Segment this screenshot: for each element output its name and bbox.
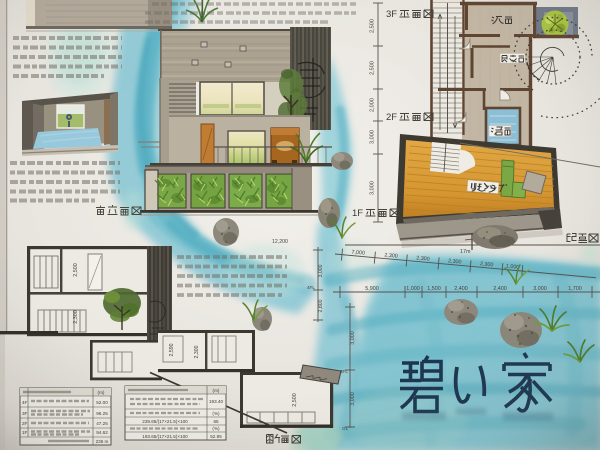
svg-text:(m): (m) — [98, 390, 105, 395]
svg-text:(%): (%) — [212, 411, 220, 416]
svg-text:(%): (%) — [212, 426, 220, 431]
svg-text:1F: 1F — [22, 430, 28, 435]
svg-text:96.25: 96.25 — [96, 411, 108, 416]
svg-text:12,200: 12,200 — [272, 239, 288, 245]
svg-text:17m: 17m — [460, 249, 471, 255]
svg-text:94.62: 94.62 — [96, 430, 108, 435]
svg-text:2,800: 2,800 — [318, 299, 324, 312]
svg-text:236 m: 236 m — [96, 439, 109, 444]
svg-text:193.40: 193.40 — [209, 399, 223, 404]
svg-text:1,000: 1,000 — [406, 286, 420, 292]
svg-text:52.00: 52.00 — [96, 400, 108, 405]
svg-text:2,500: 2,500 — [292, 393, 298, 407]
svg-text:1,700: 1,700 — [568, 286, 582, 292]
svg-text:2,590: 2,590 — [169, 343, 175, 356]
svg-text:52.95: 52.95 — [210, 434, 222, 439]
svg-text:2,300: 2,300 — [480, 261, 494, 268]
svg-text:3,000: 3,000 — [533, 286, 547, 292]
svg-text:2,300: 2,300 — [448, 258, 462, 265]
svg-text:(m): (m) — [213, 388, 220, 393]
svg-text:3F: 3F — [22, 411, 28, 416]
svg-text:2,500: 2,500 — [370, 61, 376, 75]
svg-text:2,300: 2,300 — [194, 345, 200, 358]
svg-text:3FL: 3FL — [340, 369, 348, 374]
svg-text:7,000: 7,000 — [351, 249, 365, 256]
svg-text:2,300: 2,300 — [384, 252, 398, 259]
svg-text:2,500: 2,500 — [73, 263, 79, 277]
svg-text:2,500: 2,500 — [370, 19, 376, 33]
svg-text:193.65/(17×21.5)×100: 193.65/(17×21.5)×100 — [142, 434, 188, 439]
svg-text:65: 65 — [213, 419, 219, 424]
svg-text:3,000: 3,000 — [370, 130, 376, 144]
svg-text:3,000: 3,000 — [350, 392, 356, 406]
svg-text:3,000: 3,000 — [370, 181, 376, 195]
svg-text:1,500: 1,500 — [427, 286, 441, 292]
svg-text:2F: 2F — [386, 112, 397, 123]
svg-text:3,000: 3,000 — [350, 331, 356, 345]
svg-text:2,300: 2,300 — [416, 255, 430, 262]
svg-text:2F: 2F — [22, 421, 28, 426]
svg-text:4F: 4F — [22, 400, 28, 405]
svg-text:4FL: 4FL — [307, 285, 315, 290]
svg-text:GL: GL — [342, 426, 349, 431]
svg-text:2,400: 2,400 — [493, 286, 507, 292]
svg-text:2,000: 2,000 — [370, 98, 376, 112]
svg-text:5,900: 5,900 — [365, 286, 379, 292]
svg-text:3,000: 3,000 — [318, 264, 324, 277]
svg-text:47.25: 47.25 — [96, 421, 108, 426]
svg-text:3F: 3F — [386, 9, 397, 20]
svg-text:239.65/(17×21.5)×100: 239.65/(17×21.5)×100 — [142, 419, 188, 424]
svg-text:2,300: 2,300 — [73, 310, 79, 324]
svg-text:1F: 1F — [352, 208, 363, 219]
svg-text:2,400: 2,400 — [454, 286, 468, 292]
